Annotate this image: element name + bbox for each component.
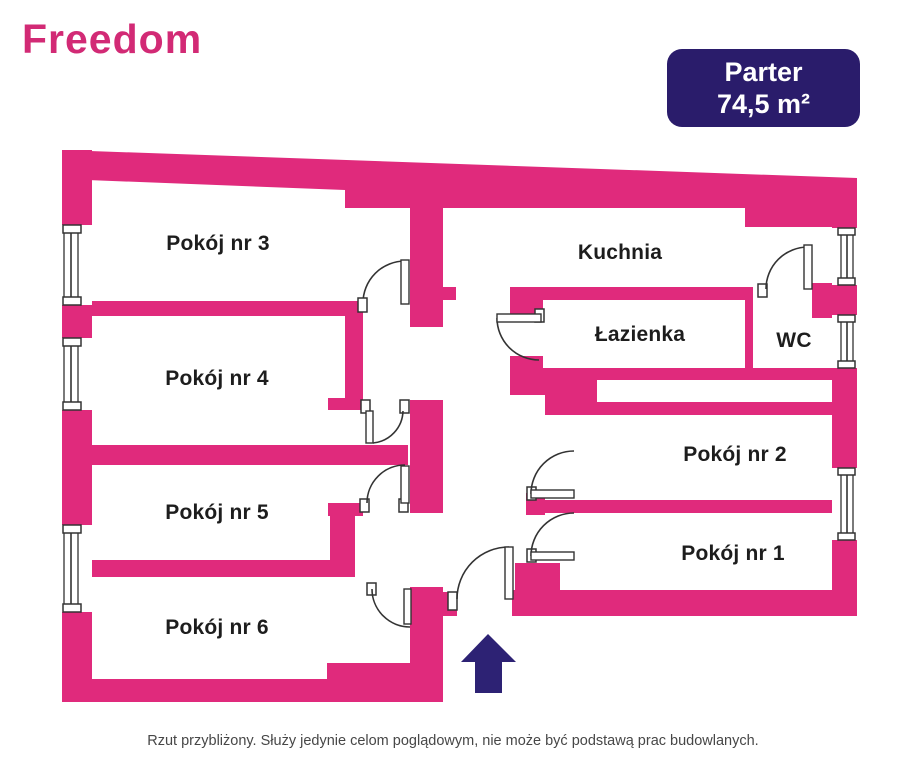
room-label-pokoj5: Pokój nr 5 bbox=[165, 501, 269, 525]
room-label-wc: WC bbox=[776, 329, 811, 353]
door-room3 bbox=[358, 260, 409, 312]
room-label-pokoj2: Pokój nr 2 bbox=[683, 443, 787, 467]
window-right-kitchen bbox=[832, 228, 857, 285]
window-left-room6 bbox=[62, 525, 92, 612]
room-label-kuchnia: Kuchnia bbox=[578, 241, 662, 265]
window-right-rooms12 bbox=[832, 468, 857, 540]
door-room2 bbox=[527, 451, 574, 500]
floor-plan-page: Freedom Parter 74,5 m² bbox=[0, 0, 906, 768]
entrance-arrow-icon bbox=[461, 634, 516, 693]
room-label-pokoj1: Pokój nr 1 bbox=[681, 542, 785, 566]
door-room1 bbox=[527, 513, 574, 562]
room-label-lazienka: Łazienka bbox=[595, 323, 685, 347]
door-bathroom bbox=[497, 309, 544, 360]
door-room5 bbox=[360, 465, 409, 512]
door-wc bbox=[758, 245, 812, 297]
door-room4 bbox=[361, 400, 409, 443]
disclaimer-text: Rzut przybliżony. Służy jedynie celom po… bbox=[0, 733, 906, 749]
window-left-room3 bbox=[62, 225, 92, 305]
room-label-pokoj6: Pokój nr 6 bbox=[165, 616, 269, 640]
room-label-pokoj3: Pokój nr 3 bbox=[166, 232, 270, 256]
door-room6 bbox=[367, 583, 411, 627]
door-entrance bbox=[448, 547, 513, 610]
floor-plan bbox=[0, 0, 906, 768]
room-label-pokoj4: Pokój nr 4 bbox=[165, 367, 269, 391]
window-right-wc bbox=[832, 315, 857, 368]
window-left-room4 bbox=[62, 338, 92, 410]
